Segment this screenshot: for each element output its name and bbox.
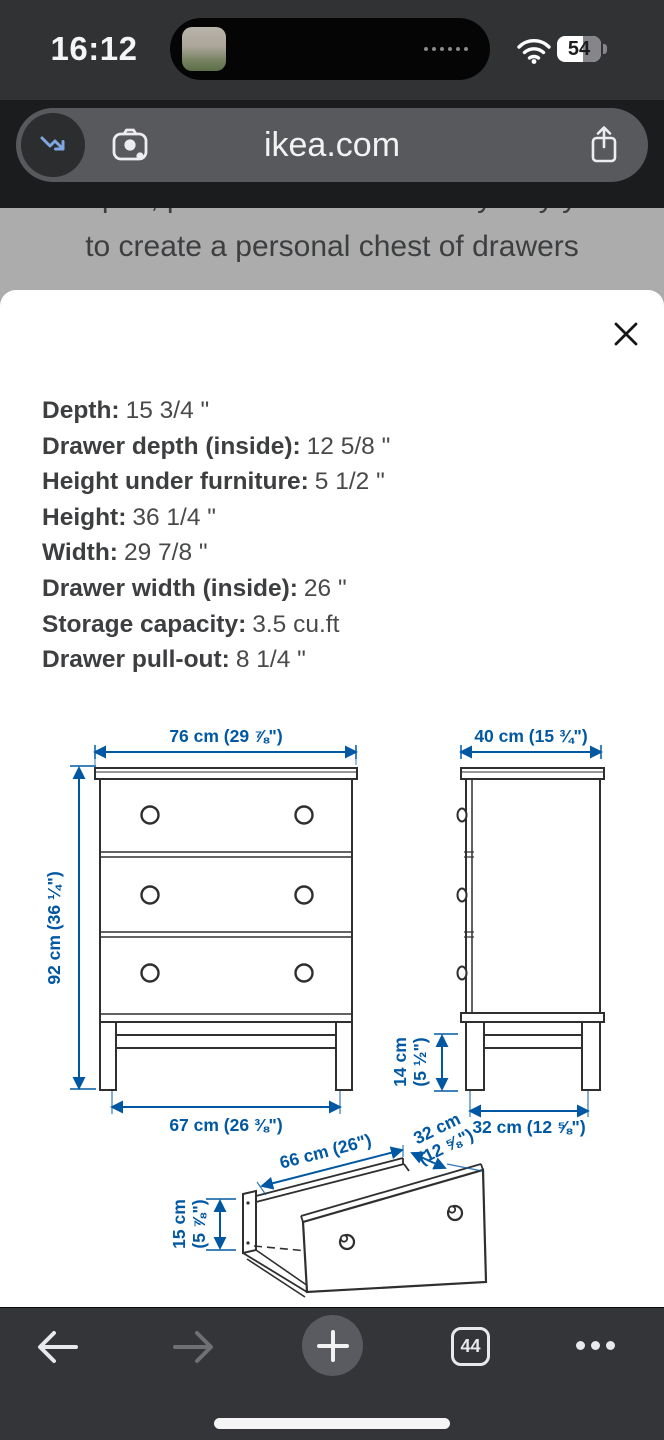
dimmed-page-background[interactable]: shapes, prints and colours in any way yo… [0, 208, 664, 290]
address-bar[interactable]: ikea.com [16, 108, 648, 182]
spec-row: Height under furniture:5 1/2 " [42, 464, 390, 500]
measurements-sheet: Depth:15 3/4 " Drawer depth (inside):12 … [0, 290, 664, 1307]
chest-front-view [95, 768, 357, 1090]
label-drawer-height: 15 cm (5 ⅞") [169, 1199, 209, 1249]
chest-side-view [458, 768, 605, 1090]
label-drawer-width: 66 cm (26") [278, 1130, 374, 1173]
wifi-icon [516, 37, 552, 69]
dynamic-island[interactable] [170, 18, 490, 80]
spec-row: Drawer depth (inside):12 5/8 " [42, 429, 390, 465]
new-tab-button[interactable] [302, 1315, 363, 1376]
spec-row: Drawer width (inside):26 " [42, 571, 390, 607]
back-icon[interactable] [34, 1328, 80, 1371]
more-icon[interactable] [576, 1341, 615, 1350]
spec-row: Storage capacity:3.5 cu.ft [42, 607, 390, 643]
tab-count: 44 [460, 1336, 480, 1357]
iphone-safari-screen: 16:12 54 [0, 0, 664, 1440]
svg-text:15 cm: 15 cm [169, 1199, 189, 1249]
browser-chrome-top: ikea.com [0, 100, 664, 208]
page-text-partial: shapes, prints and colours in any way yo… [0, 208, 664, 215]
status-bar: 16:12 54 [0, 0, 664, 100]
url-text[interactable]: ikea.com [16, 108, 648, 182]
label-side-depth: 40 cm (15 ¾") [474, 726, 587, 746]
forward-icon[interactable] [171, 1328, 217, 1371]
home-indicator[interactable] [214, 1418, 450, 1429]
pip-thumbnail[interactable] [182, 27, 226, 71]
svg-text:(5 ½"): (5 ½") [410, 1037, 430, 1086]
share-icon[interactable] [588, 124, 620, 171]
label-total-height: 92 cm (36 ¼") [44, 871, 64, 984]
label-front-width: 76 cm (29 ⅞") [169, 726, 282, 746]
spec-row: Drawer pull-out:8 1/4 " [42, 642, 390, 678]
svg-text:(5 ⅞"): (5 ⅞") [189, 1199, 209, 1248]
label-leg-span-front: 67 cm (26 ⅜") [169, 1115, 282, 1135]
label-leg-span-side: 32 cm (12 ⅝") [472, 1117, 585, 1137]
spec-row: Width:29 7/8 " [42, 535, 390, 571]
browser-toolbar: 44 [0, 1307, 664, 1440]
drawer-iso-view [243, 1158, 486, 1297]
dimension-diagram: 76 cm (29 ⅞") 40 cm (15 ¾") 92 cm (36 ¼"… [0, 705, 664, 1305]
tabs-button[interactable]: 44 [451, 1327, 490, 1366]
battery-indicator: 54 [557, 36, 601, 62]
spec-row: Depth:15 3/4 " [42, 393, 390, 429]
activity-dots-icon [424, 47, 468, 51]
page-text-line: to create a personal chest of drawers [0, 230, 664, 264]
dimension-list: Depth:15 3/4 " Drawer depth (inside):12 … [42, 393, 390, 678]
battery-nub [603, 44, 607, 54]
close-icon[interactable] [610, 318, 642, 350]
svg-text:14 cm: 14 cm [390, 1037, 410, 1087]
spec-row: Height:36 1/4 " [42, 500, 390, 536]
label-drawer-depth: 32 cm (12 ⅝") [406, 1107, 476, 1169]
clock: 16:12 [42, 30, 146, 68]
label-leg-height: 14 cm (5 ½") [390, 1037, 430, 1087]
